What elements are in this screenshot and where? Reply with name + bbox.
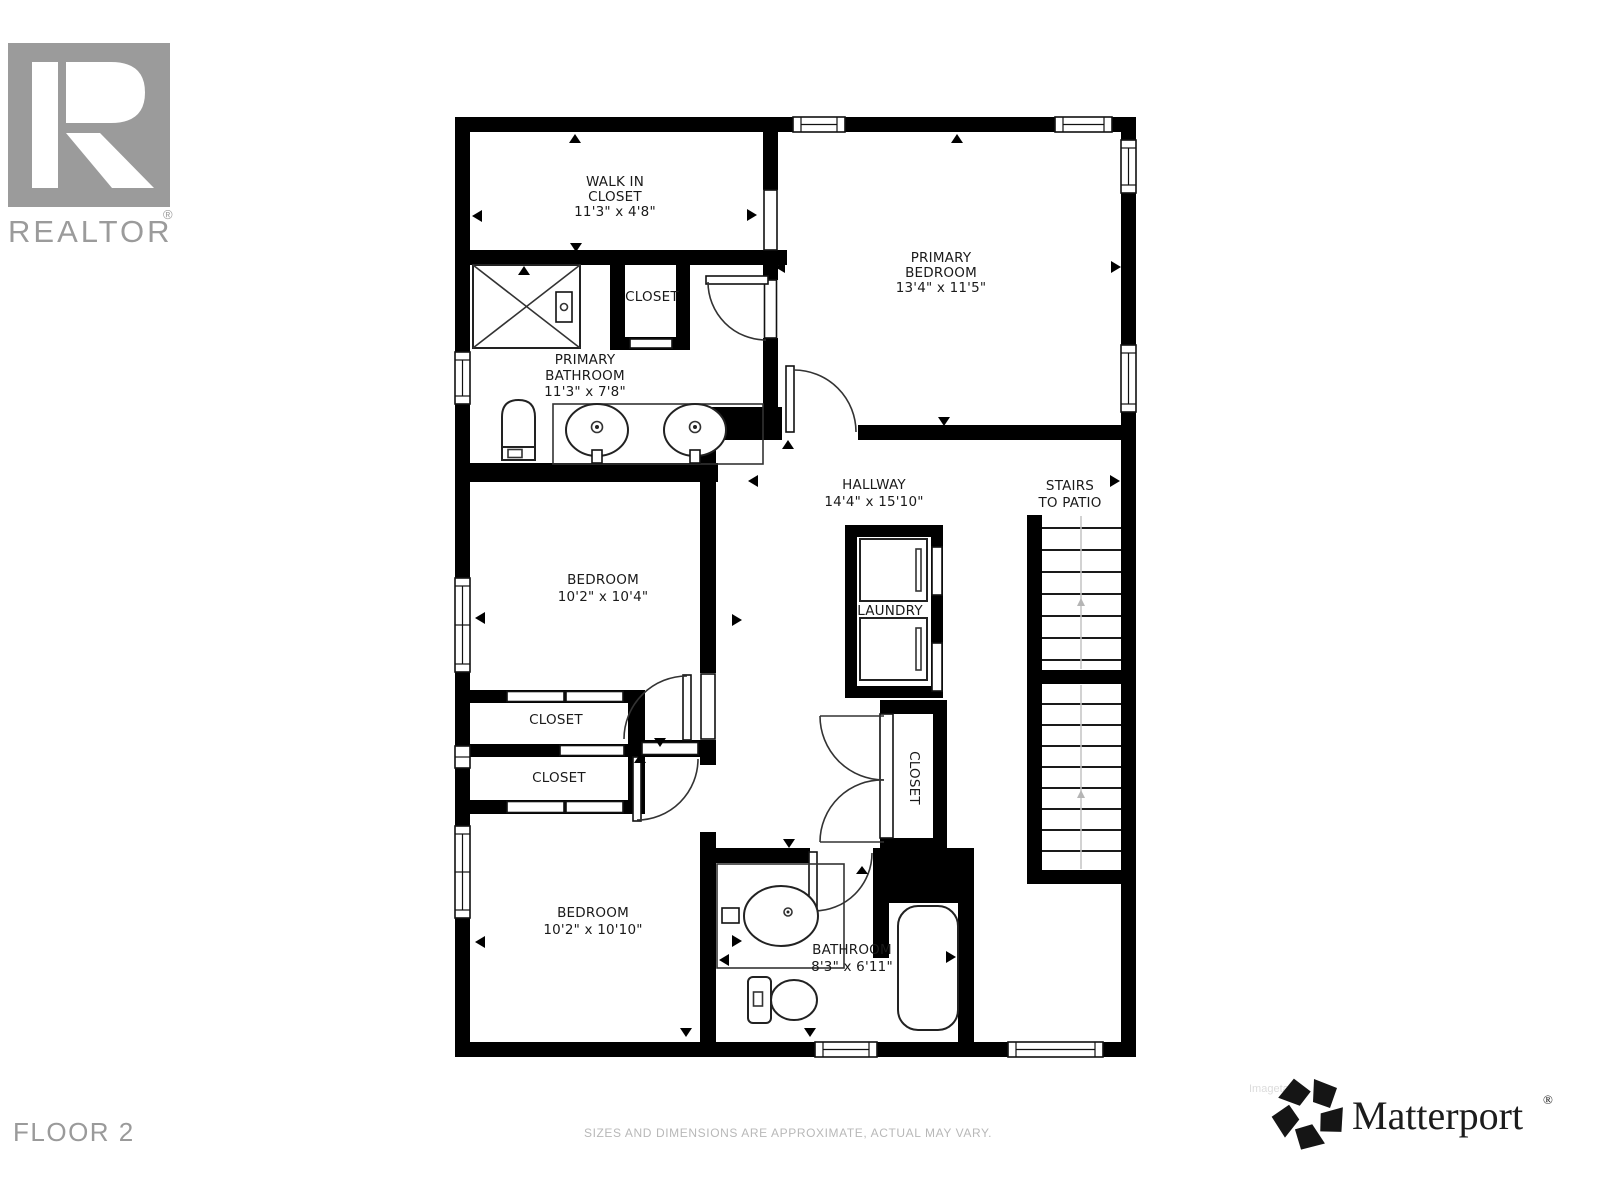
matterport-registered-mark: ® bbox=[1543, 1092, 1553, 1107]
primary-bathroom-dims: 11'3" x 7'8" bbox=[544, 384, 626, 400]
realtor-logo-icon bbox=[8, 43, 170, 207]
primary-toilet bbox=[502, 400, 535, 460]
bedroom-2-dims: 10'2" x 10'10" bbox=[543, 922, 642, 938]
floorplan-canvas: REALTOR ® bbox=[0, 0, 1600, 1200]
walk-in-closet-dims: 11'3" x 4'8" bbox=[574, 204, 656, 220]
bathtub bbox=[898, 906, 958, 1030]
bathroom-label: BATHROOM bbox=[812, 942, 892, 958]
primary-bathroom-label: PRIMARY bbox=[555, 352, 616, 368]
primary-closet-label: CLOSET bbox=[625, 289, 679, 305]
bedroom-1-label: BEDROOM bbox=[567, 572, 639, 588]
closet-1-label: CLOSET bbox=[529, 712, 583, 728]
hallway-dims: 14'4" x 15'10" bbox=[824, 494, 923, 510]
bedroom-2-label: BEDROOM bbox=[557, 905, 629, 921]
bathroom-toilet bbox=[748, 977, 817, 1023]
hall-closet-label: CLOSET bbox=[906, 751, 922, 805]
stairs-label: STAIRS bbox=[1046, 478, 1094, 494]
laundry-label: LAUNDRY bbox=[857, 603, 923, 619]
closet-2-label: CLOSET bbox=[532, 770, 586, 786]
stairs-label2: TO PATIO bbox=[1037, 495, 1101, 511]
matterport-wordmark: Matterport bbox=[1352, 1093, 1523, 1138]
floor-label: FLOOR 2 bbox=[13, 1117, 135, 1147]
bedroom-1-dims: 10'2" x 10'4" bbox=[558, 589, 649, 605]
primary-bedroom-label2: BEDROOM bbox=[905, 265, 977, 281]
primary-bedroom-label: PRIMARY bbox=[911, 250, 972, 266]
primary-bathroom-label2: BATHROOM bbox=[545, 368, 625, 384]
washer bbox=[860, 539, 927, 601]
floorplan-page: REALTOR ® bbox=[0, 0, 1600, 1200]
walk-in-closet-label: WALK IN bbox=[586, 174, 644, 190]
dryer bbox=[860, 618, 927, 680]
walk-in-closet-label2: CLOSET bbox=[588, 189, 642, 205]
primary-bedroom-dims: 13'4" x 11'5" bbox=[896, 280, 987, 296]
disclaimer-text: SIZES AND DIMENSIONS ARE APPROXIMATE, AC… bbox=[584, 1126, 992, 1140]
bathroom-dims: 8'3" x 6'11" bbox=[811, 959, 893, 975]
hallway-label: HALLWAY bbox=[842, 477, 906, 493]
realtor-wordmark: REALTOR bbox=[8, 214, 173, 249]
realtor-registered-mark: ® bbox=[163, 207, 173, 222]
shower bbox=[473, 265, 580, 348]
